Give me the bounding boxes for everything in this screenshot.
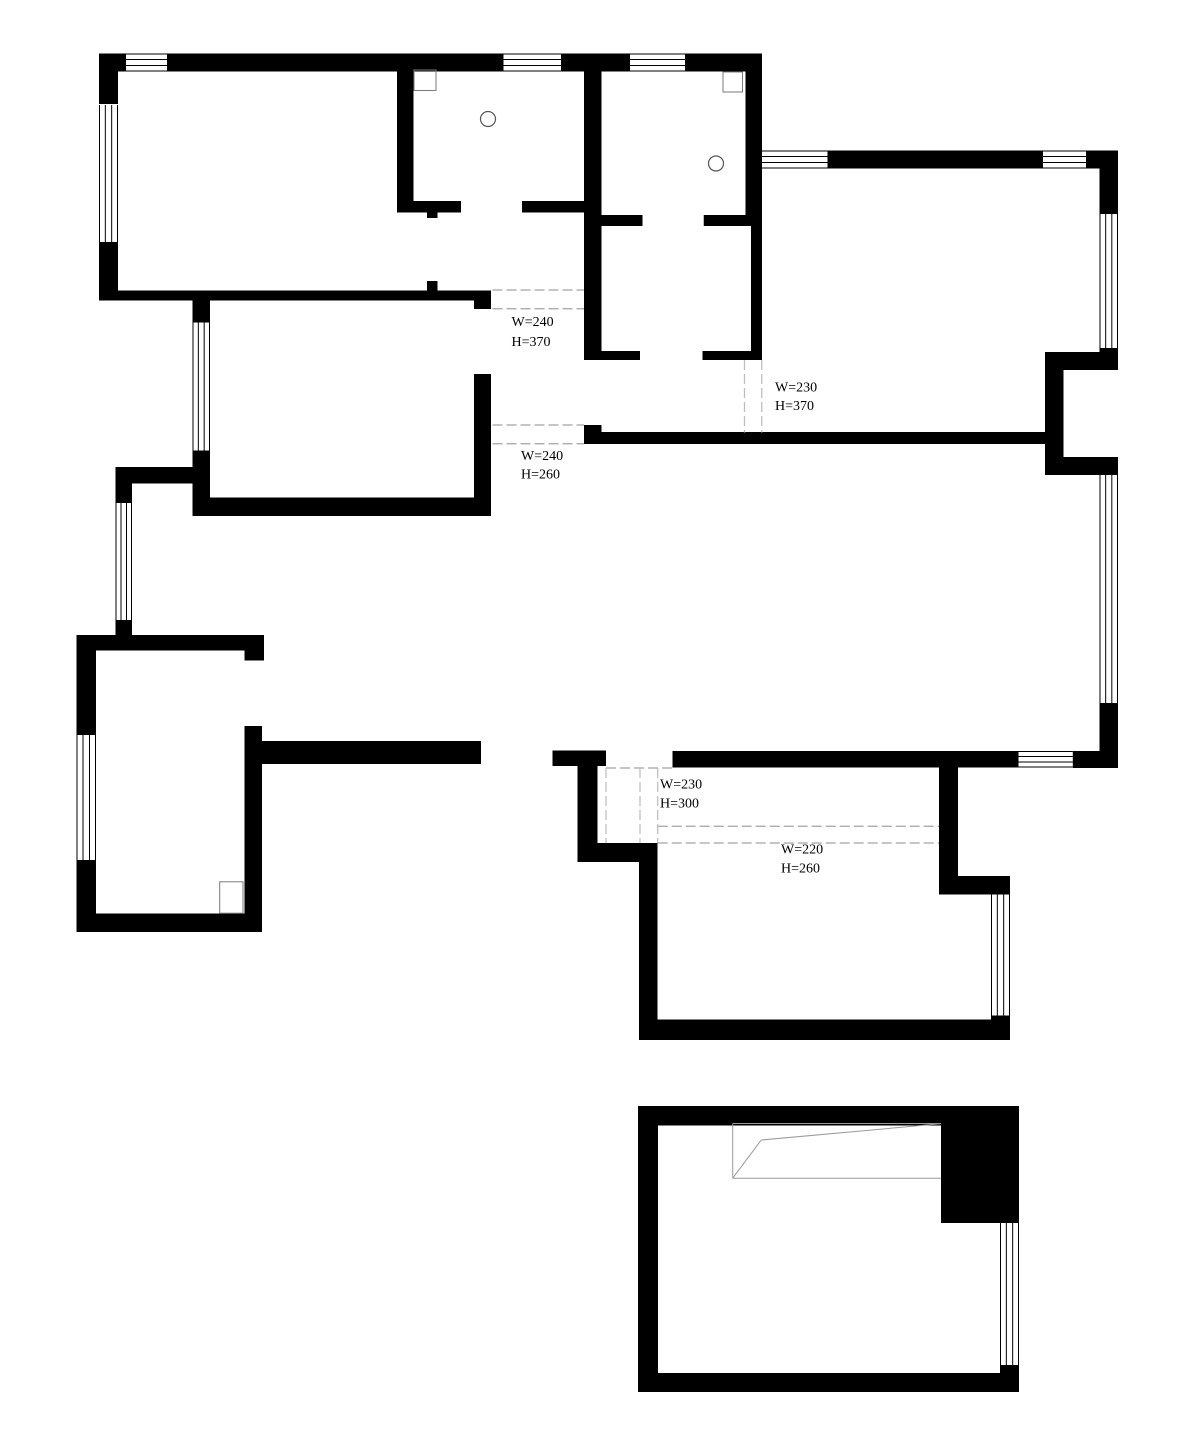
- svg-text:W=230: W=230: [660, 778, 702, 793]
- svg-text:W=230: W=230: [775, 381, 817, 396]
- svg-text:H=260: H=260: [521, 468, 560, 483]
- svg-text:H=300: H=300: [660, 797, 699, 812]
- svg-text:W=220: W=220: [781, 843, 823, 858]
- svg-text:H=370: H=370: [512, 335, 551, 350]
- svg-text:W=240: W=240: [512, 315, 554, 330]
- svg-text:H=370: H=370: [775, 399, 814, 414]
- svg-text:W=240: W=240: [521, 449, 563, 464]
- svg-text:H=260: H=260: [781, 862, 820, 877]
